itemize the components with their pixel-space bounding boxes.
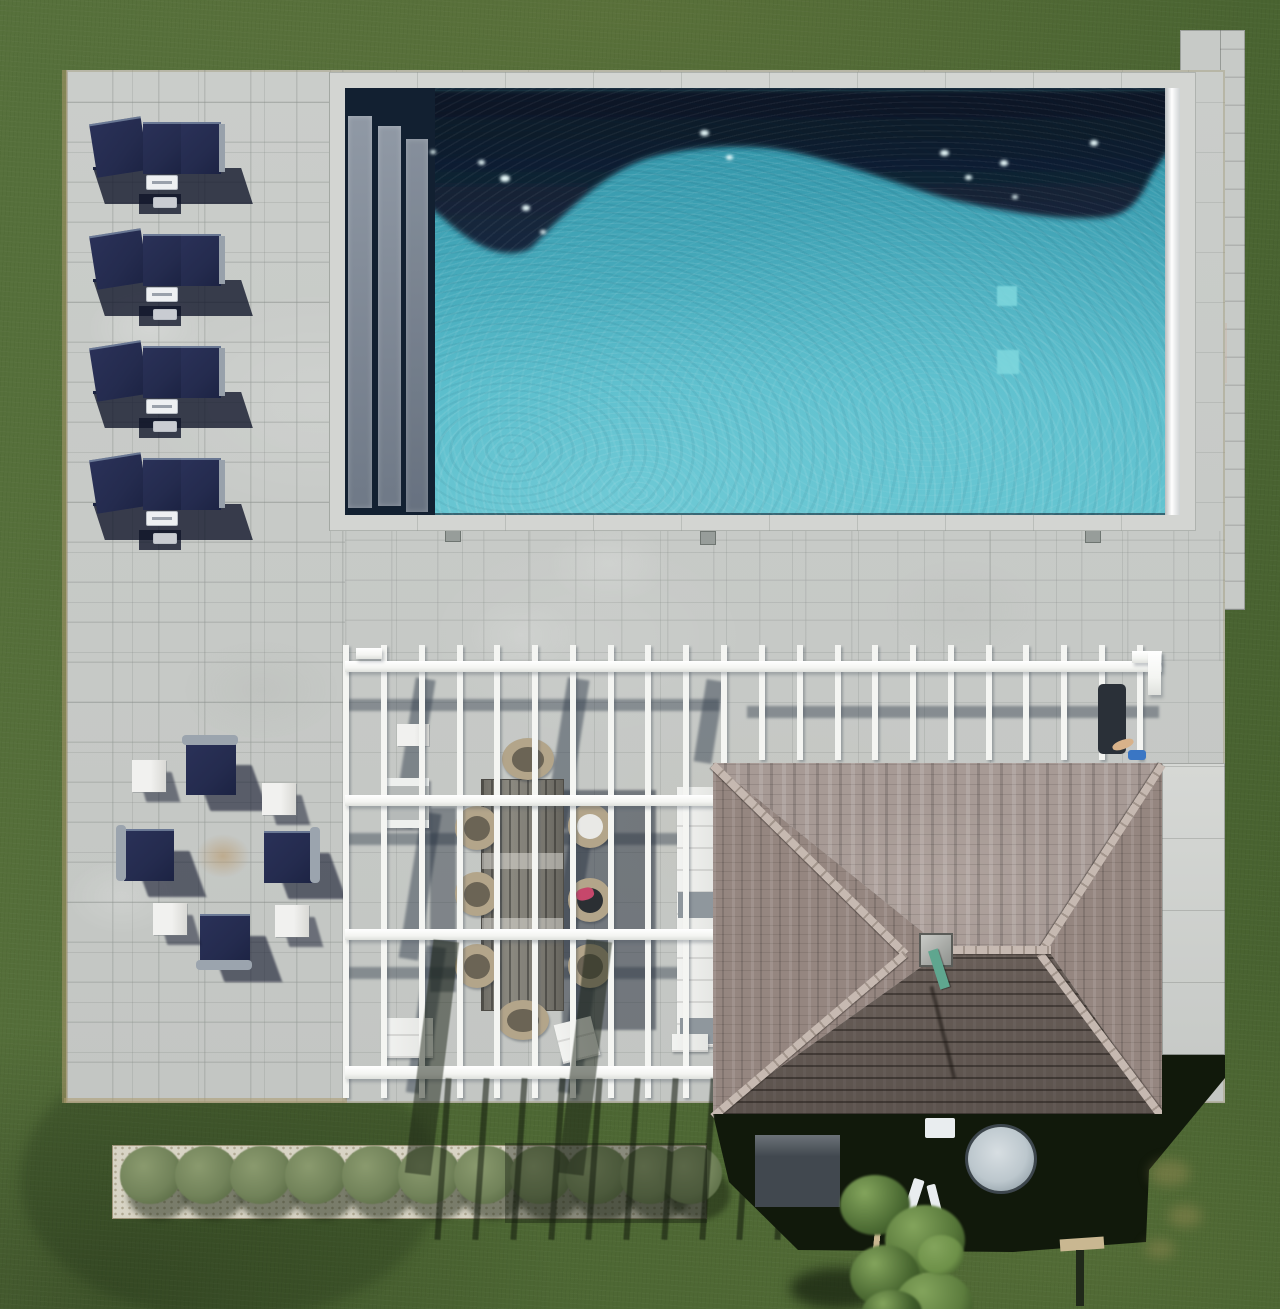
flagstone-band-mid bbox=[345, 531, 1225, 661]
chair-cushion bbox=[264, 831, 314, 883]
side-table-cube bbox=[275, 905, 309, 937]
pool-step-2 bbox=[378, 126, 401, 506]
dry-grass-patch bbox=[1168, 1205, 1202, 1227]
lounge-tag-text bbox=[152, 405, 172, 408]
side-table-cube bbox=[153, 903, 187, 935]
chair-seat bbox=[464, 816, 490, 842]
pool-filter-drum bbox=[968, 1127, 1034, 1191]
chair-cushion bbox=[124, 829, 174, 881]
pool-step-1 bbox=[348, 116, 372, 508]
lounge-tag-text bbox=[152, 517, 172, 520]
pergola-slat bbox=[683, 645, 689, 1098]
chair-seat bbox=[512, 747, 543, 771]
pergola-end-bracket-b bbox=[1148, 651, 1161, 695]
lounge-seat-cushion bbox=[143, 234, 181, 286]
pergola-slat bbox=[381, 645, 387, 1098]
chair-back-rail bbox=[116, 825, 126, 881]
lounge-back-cushion bbox=[89, 452, 149, 513]
blue-towel bbox=[1128, 750, 1146, 760]
lounge-frame-end bbox=[219, 460, 225, 508]
lounge-back-cushion bbox=[89, 228, 149, 289]
side-table-cube bbox=[262, 783, 296, 815]
chair-back-rail bbox=[196, 960, 252, 970]
chaise-lounge bbox=[93, 342, 225, 442]
lounge-frame-end bbox=[219, 124, 225, 172]
pergola-beam bbox=[345, 795, 719, 806]
fire-pit-chair bbox=[180, 737, 244, 801]
chair-back-rail bbox=[182, 735, 238, 745]
lounge-seat-cushion bbox=[143, 458, 181, 510]
sparkle bbox=[1000, 160, 1008, 166]
sparkle bbox=[965, 175, 972, 180]
chair-back-rail bbox=[310, 827, 320, 883]
pool-floor-light bbox=[997, 350, 1019, 374]
fire-pit-chair bbox=[118, 823, 182, 887]
aerial-backyard-photo: Overhead drone view of a backyard: recta… bbox=[0, 0, 1280, 1309]
water-ripples bbox=[345, 88, 1180, 515]
pool-pump bbox=[925, 1118, 955, 1138]
lounge-back-cushion bbox=[89, 116, 149, 177]
pool-cover-roller bbox=[1165, 88, 1180, 515]
lounge-tag bbox=[146, 511, 178, 526]
lounge-tag bbox=[146, 175, 178, 190]
pergola-slat bbox=[494, 645, 500, 1098]
chair-seat bbox=[577, 814, 603, 840]
pergola-bench-bottom-right bbox=[672, 1034, 708, 1052]
pergola-slat bbox=[457, 645, 463, 1098]
patio-edging-bottom bbox=[64, 1098, 347, 1103]
fire-pit-chair bbox=[194, 908, 258, 972]
sparkle bbox=[726, 155, 733, 160]
lounge-leg-cushion bbox=[181, 234, 221, 286]
chaise-lounge bbox=[93, 118, 225, 218]
equipment-box bbox=[755, 1135, 840, 1207]
lounge-tag bbox=[146, 399, 178, 414]
lounge-frame-end bbox=[219, 348, 225, 396]
lounge-tag-small bbox=[153, 309, 177, 320]
pergola-slat bbox=[343, 645, 349, 1098]
sparkle bbox=[1090, 140, 1098, 146]
sparkle bbox=[522, 205, 530, 211]
lounge-tag bbox=[146, 287, 178, 302]
pergola-slat bbox=[532, 645, 538, 1098]
pool-step-3 bbox=[406, 139, 428, 512]
gate-post bbox=[1076, 1250, 1084, 1306]
patio-drain bbox=[700, 531, 716, 545]
lounge-tag-text bbox=[152, 293, 172, 296]
pergola-slat bbox=[645, 645, 651, 1098]
dry-grass-patch bbox=[1150, 1160, 1190, 1186]
pergola-beam bbox=[345, 929, 719, 940]
chaise-lounge bbox=[93, 454, 225, 554]
fire-pit bbox=[196, 834, 250, 878]
lounge-tag-small bbox=[153, 421, 177, 432]
pergola-beam bbox=[345, 1066, 719, 1079]
wicker-dining-chair bbox=[502, 738, 554, 780]
lounge-leg-cushion bbox=[181, 346, 221, 398]
sparkle bbox=[500, 175, 510, 182]
bed-shade-overlay bbox=[505, 1143, 707, 1223]
lounge-seat-cushion bbox=[143, 122, 181, 174]
pergola-beam bbox=[345, 661, 1162, 672]
lounge-tag-small bbox=[153, 533, 177, 544]
patio-edging-left bbox=[62, 70, 67, 1103]
chair-cushion bbox=[186, 743, 236, 795]
chair-seat bbox=[464, 954, 490, 980]
lounge-frame-end bbox=[219, 236, 225, 284]
stone-walkway-house-side bbox=[1162, 763, 1225, 1055]
swimming-pool bbox=[345, 88, 1180, 515]
lounge-tag-text bbox=[152, 181, 172, 184]
roof-ridge-cap bbox=[941, 946, 1051, 954]
lounge-seat-cushion bbox=[143, 346, 181, 398]
lounge-leg-cushion bbox=[181, 458, 221, 510]
lounge-tag-small bbox=[153, 197, 177, 208]
chair-seat bbox=[464, 882, 490, 908]
pool-house-hip-roof bbox=[713, 763, 1162, 1115]
wicker-dining-chair bbox=[497, 1000, 549, 1040]
patio-drain bbox=[1085, 529, 1101, 543]
fire-pit-chair bbox=[258, 825, 322, 889]
pergola-slat bbox=[608, 645, 614, 1098]
pergola-left-bracket bbox=[356, 648, 382, 659]
lounge-leg-cushion bbox=[181, 122, 221, 174]
tree-foliage bbox=[918, 1235, 964, 1275]
side-table-cube bbox=[132, 760, 166, 792]
pool-floor-light bbox=[997, 286, 1017, 306]
lounge-back-cushion bbox=[89, 340, 149, 401]
chaise-lounge bbox=[93, 230, 225, 330]
dry-grass-patch bbox=[1145, 1240, 1175, 1258]
sparkle bbox=[478, 160, 485, 165]
chair-cushion bbox=[200, 914, 250, 966]
